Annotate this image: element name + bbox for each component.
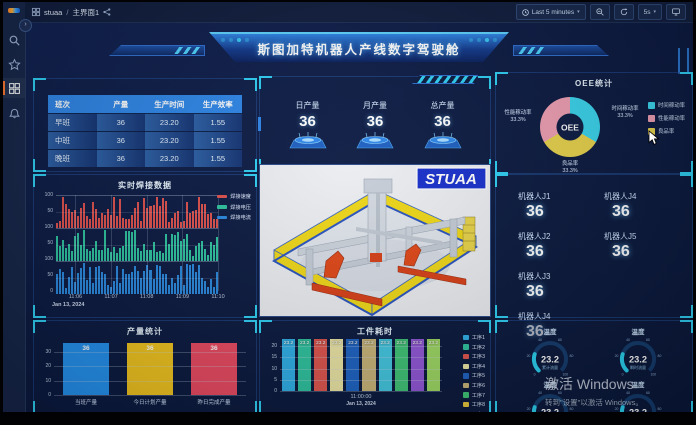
grid-line bbox=[182, 195, 183, 291]
bar-value-label: 23.2 bbox=[332, 341, 341, 346]
legend-swatch bbox=[463, 402, 469, 408]
workpiece-legend-item: 工序7 bbox=[463, 392, 485, 399]
panel-corner-decoration bbox=[33, 159, 46, 172]
welding-legend-item: 焊接速度 bbox=[217, 193, 251, 200]
legend-swatch bbox=[463, 383, 469, 389]
grid-line bbox=[54, 395, 246, 396]
search-icon[interactable] bbox=[3, 30, 25, 50]
robot-stat: 机器人J236 bbox=[518, 231, 596, 261]
gauges-grid: 温度02040608010023.2累计流量温度02040608010023.2… bbox=[506, 324, 682, 410]
stat-card-label: 月产量 bbox=[355, 100, 395, 111]
stat-card-value: 36 bbox=[423, 113, 463, 130]
svg-text:40: 40 bbox=[626, 338, 630, 342]
star-icon[interactable] bbox=[3, 54, 25, 74]
grid-line bbox=[54, 381, 246, 382]
oee-legend-item: 性能稼动率 bbox=[648, 114, 685, 122]
legend-swatch bbox=[463, 354, 469, 360]
legend-swatch bbox=[648, 115, 655, 122]
shift-table-panel: 班次产量生产时间生产效率早班3623.201.55中班3623.201.55晚班… bbox=[33, 78, 257, 172]
legend-label: 性能稼动率 bbox=[658, 114, 685, 122]
dashboards-icon[interactable] bbox=[3, 78, 25, 98]
svg-text:40: 40 bbox=[538, 338, 542, 342]
welding-title: 实时焊接数据 bbox=[34, 180, 256, 191]
welding-band bbox=[56, 195, 218, 228]
svg-text:23.2: 23.2 bbox=[629, 407, 647, 412]
shift-table: 班次产量生产时间生产效率早班3623.201.55中班3623.201.55晚班… bbox=[48, 95, 242, 167]
model-image-panel[interactable]: STUAA bbox=[259, 164, 491, 317]
stat-card-label: 总产量 bbox=[423, 100, 463, 111]
legend-swatch bbox=[648, 102, 655, 109]
y-axis-tick: 50 bbox=[47, 272, 53, 278]
welding-date: Jan 13, 2024 bbox=[52, 302, 84, 308]
table-header-cell: 产量 bbox=[97, 95, 146, 114]
legend-swatch bbox=[463, 344, 469, 350]
workpiece-date: Jan 13, 2024 bbox=[346, 401, 375, 407]
grid-line bbox=[147, 195, 148, 291]
panel-corner-decoration bbox=[244, 401, 257, 412]
grid-line bbox=[280, 357, 442, 358]
workpiece-title: 工件耗时 bbox=[260, 326, 490, 337]
x-axis-tick: 11:08 bbox=[140, 294, 153, 300]
x-axis-tick: 11:09 bbox=[176, 294, 189, 300]
grid-line bbox=[280, 391, 442, 392]
bar-category-label: 昨日完成产量 bbox=[191, 398, 237, 406]
oee-center-label: OEE bbox=[557, 114, 584, 141]
grid-line bbox=[75, 195, 76, 291]
stat-card: 总产量36 bbox=[423, 100, 463, 151]
gauge-arc: 02040608010023.2 bbox=[601, 388, 675, 412]
bar-category-label: 当班产量 bbox=[63, 398, 109, 406]
panel-corner-decoration bbox=[244, 159, 257, 172]
robot-stat: 机器人J136 bbox=[518, 191, 596, 221]
legend-swatch bbox=[463, 364, 469, 370]
legend-swatch bbox=[217, 195, 227, 199]
legend-swatch bbox=[463, 373, 469, 379]
panel-corner-decoration bbox=[495, 401, 508, 412]
alerts-bell-icon[interactable] bbox=[3, 102, 25, 122]
y-axis-tick: 50 bbox=[47, 240, 53, 246]
platform-icon bbox=[355, 131, 395, 151]
legend-label: 焊接电流 bbox=[230, 214, 251, 221]
legend-swatch bbox=[217, 216, 227, 220]
refresh-interval-label: 5s bbox=[644, 9, 651, 16]
y-axis-tick: 20 bbox=[271, 343, 277, 349]
svg-text:23.2: 23.2 bbox=[541, 354, 559, 364]
svg-text:瞬时流量: 瞬时流量 bbox=[630, 364, 646, 370]
temperature-gauge: 温度02040608010023.2累计流量 bbox=[506, 324, 594, 377]
legend-swatch bbox=[463, 392, 469, 398]
stat-card: 月产量36 bbox=[355, 100, 395, 151]
x-axis-tick: 11:07 bbox=[104, 294, 117, 300]
platform-icon bbox=[423, 131, 463, 151]
bar-category-label: 今日计划产量 bbox=[127, 398, 173, 406]
panel-corner-decoration bbox=[495, 320, 508, 333]
gauge-arc: 02040608010023.2累计流量 bbox=[513, 335, 587, 377]
oee-donut-chart: OEE bbox=[540, 97, 600, 157]
production-stats-title: 产量统计 bbox=[34, 326, 256, 337]
svg-text:80: 80 bbox=[570, 407, 574, 411]
welding-legend-item: 焊接电流 bbox=[217, 214, 251, 221]
y-axis-tick: 10 bbox=[45, 378, 51, 384]
y-axis-tick: 5 bbox=[274, 377, 277, 383]
workpiece-x-tick: 11:00:00 bbox=[350, 394, 371, 400]
y-axis-tick: 30 bbox=[45, 349, 51, 355]
legend-label: 工序6 bbox=[472, 382, 485, 389]
svg-text:累计流量: 累计流量 bbox=[542, 364, 558, 370]
dashboard-title: 斯图加特机器人产线数字驾驶舱 bbox=[257, 39, 460, 58]
panel-corner-decoration bbox=[680, 305, 693, 318]
workpiece-legend-item: 工序6 bbox=[463, 382, 485, 389]
robot-stat: 机器人J436 bbox=[604, 191, 682, 221]
robot-value: 36 bbox=[518, 283, 596, 301]
breadcrumb-app[interactable]: stuaa bbox=[44, 8, 62, 17]
clock-icon bbox=[522, 9, 529, 16]
oee-legend-item: 时间稼动率 bbox=[648, 101, 685, 109]
banner-wing-left bbox=[109, 45, 205, 56]
legend-label: 工序3 bbox=[472, 353, 485, 360]
bar-value-label: 23.2 bbox=[429, 341, 438, 346]
y-axis-tick: 100 bbox=[45, 224, 53, 230]
table-row: 中班3623.201.55 bbox=[48, 132, 242, 150]
panel-corner-decoration bbox=[478, 401, 491, 412]
y-axis-tick: 15 bbox=[271, 354, 277, 360]
sidebar bbox=[3, 2, 26, 412]
robot-stat: 机器人J536 bbox=[604, 231, 682, 261]
svg-text:40: 40 bbox=[538, 391, 542, 395]
stat-cards: 日产量36月产量36总产量36 bbox=[260, 77, 490, 171]
welding-band bbox=[56, 228, 218, 261]
gauge-arc: 02040608010023.2 bbox=[513, 388, 587, 412]
table-cell: 23.20 bbox=[145, 132, 194, 150]
stat-card-label: 日产量 bbox=[288, 100, 328, 111]
table-cell: 1.55 bbox=[194, 114, 243, 132]
workpiece-legend-item: 工序5 bbox=[463, 372, 485, 379]
robot-value: 36 bbox=[604, 203, 682, 221]
kiosk-mode-button[interactable] bbox=[666, 4, 686, 20]
bar-value-label: 23.2 bbox=[413, 341, 422, 346]
legend-label: 良品率 bbox=[658, 127, 674, 135]
table-cell: 1.55 bbox=[194, 132, 243, 150]
panel-corner-decoration bbox=[33, 78, 46, 91]
zoom-out-button[interactable] bbox=[590, 4, 610, 20]
bar-value-label: 23.2 bbox=[348, 341, 357, 346]
temperature-gauge: 温度02040608010023.2 bbox=[506, 377, 594, 412]
gauge-arc: 02040608010023.2瞬时流量 bbox=[601, 335, 675, 377]
svg-text:23.2: 23.2 bbox=[541, 407, 559, 412]
breadcrumb-page[interactable]: 主界面1 bbox=[72, 7, 99, 18]
breadcrumb-separator: / bbox=[66, 8, 68, 17]
oee-title: OEE统计 bbox=[496, 78, 692, 89]
production-cards-panel: 日产量36月产量36总产量36 bbox=[259, 76, 491, 172]
legend-swatch bbox=[217, 205, 227, 209]
workpiece-legend-item: 工序3 bbox=[463, 353, 485, 360]
table-row: 早班3623.201.55 bbox=[48, 114, 242, 132]
svg-text:20: 20 bbox=[615, 354, 619, 358]
panel-corner-decoration bbox=[33, 401, 46, 412]
svg-text:40: 40 bbox=[626, 391, 630, 395]
table-header-cell: 生产效率 bbox=[194, 95, 243, 114]
banner-dots-left bbox=[221, 38, 249, 42]
y-axis-tick: 20 bbox=[45, 363, 51, 369]
bar-value-label: 23.2 bbox=[380, 341, 389, 346]
temperature-gauge: 温度02040608010023.2 bbox=[594, 377, 682, 412]
refresh-icon bbox=[620, 8, 628, 16]
table-cell: 36 bbox=[97, 132, 146, 150]
legend-label: 工序2 bbox=[472, 344, 485, 351]
panel-corner-decoration bbox=[680, 320, 693, 333]
workpiece-legend-item: 工序4 bbox=[463, 363, 485, 370]
panel-corner-decoration bbox=[495, 305, 508, 318]
table-cell: 早班 bbox=[48, 114, 97, 132]
dashboard-grid-icon bbox=[32, 8, 40, 16]
temperature-gauge: 温度02040608010023.2瞬时流量 bbox=[594, 324, 682, 377]
table-cell: 晚班 bbox=[48, 150, 97, 168]
robot-value: 36 bbox=[604, 243, 682, 261]
svg-text:60: 60 bbox=[558, 391, 562, 395]
chevron-down-icon: ▾ bbox=[653, 9, 656, 15]
svg-text:80: 80 bbox=[570, 354, 574, 358]
robot-label: 机器人J5 bbox=[604, 231, 682, 242]
oee-panel: OEE统计 OEE 时间稼动率33.3% 性能稼动率33.3% 良品率33.3%… bbox=[495, 72, 693, 174]
x-axis-tick: 11:06 bbox=[69, 294, 82, 300]
robot-value: 36 bbox=[518, 243, 596, 261]
refresh-interval-picker[interactable]: 5s ▾ bbox=[638, 4, 662, 20]
welding-legend-item: 焊接电压 bbox=[217, 204, 251, 211]
panel-corner-decoration bbox=[680, 161, 693, 174]
welding-legend: 焊接速度焊接电压焊接电流 bbox=[217, 193, 251, 221]
platform-icon bbox=[288, 131, 328, 151]
svg-text:20: 20 bbox=[527, 354, 531, 358]
table-cell: 23.20 bbox=[145, 114, 194, 132]
svg-text:60: 60 bbox=[646, 391, 650, 395]
svg-text:80: 80 bbox=[658, 354, 662, 358]
y-axis-tick: 0 bbox=[50, 288, 53, 294]
legend-label: 工序4 bbox=[472, 363, 485, 370]
table-header-cell: 班次 bbox=[48, 95, 97, 114]
svg-text:60: 60 bbox=[646, 338, 650, 342]
app-logo[interactable] bbox=[8, 8, 20, 13]
monitor-icon bbox=[672, 8, 680, 16]
zoom-out-icon bbox=[596, 8, 604, 16]
stat-card: 日产量36 bbox=[288, 100, 328, 151]
welding-band bbox=[56, 261, 218, 294]
workpiece-chart-panel: 工件耗时 23.223.223.223.223.223.223.223.223.… bbox=[259, 320, 491, 412]
time-range-picker[interactable]: Last 5 minutes ▾ bbox=[516, 4, 586, 20]
panel-corner-decoration bbox=[680, 401, 693, 412]
grid-line bbox=[280, 369, 442, 370]
panel-corner-decoration bbox=[259, 401, 272, 412]
production-stats-plot: 36当班产量36今日计划产量36昨日完成产量 3020100 bbox=[54, 343, 246, 395]
bar-value-label: 23.2 bbox=[397, 341, 406, 346]
robot-value: 36 bbox=[518, 203, 596, 221]
banner-dots-right bbox=[469, 38, 497, 42]
time-range-label: Last 5 minutes bbox=[532, 9, 574, 16]
panel-corner-decoration bbox=[244, 78, 257, 91]
svg-text:20: 20 bbox=[615, 407, 619, 411]
table-header-cell: 生产时间 bbox=[145, 95, 194, 114]
share-icon[interactable] bbox=[103, 8, 111, 16]
svg-text:20: 20 bbox=[527, 407, 531, 411]
y-axis-tick: 100 bbox=[45, 192, 53, 198]
legend-label: 时间稼动率 bbox=[658, 101, 685, 109]
grid-line bbox=[280, 380, 442, 381]
table-cell: 23.20 bbox=[145, 150, 194, 168]
robot-label: 机器人J2 bbox=[518, 231, 596, 242]
title-banner: 斯图加特机器人产线数字驾驶舱 bbox=[109, 30, 609, 72]
svg-text:60: 60 bbox=[558, 338, 562, 342]
oee-slice-label: 性能稼动率33.3% bbox=[498, 110, 538, 125]
y-axis-tick: 10 bbox=[271, 366, 277, 372]
bar-value-label: 23.2 bbox=[284, 341, 293, 346]
grid-line bbox=[54, 352, 246, 353]
legend-label: 工序7 bbox=[472, 392, 485, 399]
panel-corner-decoration bbox=[478, 76, 491, 89]
chevron-down-icon: ▾ bbox=[577, 9, 580, 15]
y-axis-tick: 50 bbox=[47, 208, 53, 214]
legend-label: 工序5 bbox=[472, 372, 485, 379]
robot-label: 机器人J1 bbox=[518, 191, 596, 202]
grid-line bbox=[280, 346, 442, 347]
bar-value-label: 23.2 bbox=[364, 341, 373, 346]
table-cell: 1.55 bbox=[194, 150, 243, 168]
monitor-screen: › stuaa / 主界面1 Last 5 minutes ▾ 5s ▾ bbox=[3, 2, 693, 412]
y-axis-tick: 0 bbox=[48, 392, 51, 398]
banner-wing-right bbox=[513, 45, 609, 56]
panel-corner-decoration bbox=[495, 161, 508, 174]
bar-value-label: 23.2 bbox=[300, 341, 309, 346]
topbar-controls: Last 5 minutes ▾ 5s ▾ bbox=[516, 4, 686, 20]
edge-accent bbox=[678, 48, 689, 74]
grid-line bbox=[111, 195, 112, 291]
oee-slice-label: 时间稼动率33.3% bbox=[604, 106, 646, 121]
banner-plate: 斯图加特机器人产线数字驾驶舱 bbox=[209, 32, 509, 62]
legend-label: 焊接电压 bbox=[230, 204, 251, 211]
robot-label: 机器人J4 bbox=[604, 191, 682, 202]
table-cell: 36 bbox=[97, 150, 146, 168]
panel-corner-decoration bbox=[244, 305, 257, 318]
production-stats-panel: 产量统计 36当班产量36今日计划产量36昨日完成产量 3020100 bbox=[33, 320, 257, 412]
bar-value-label: 23.2 bbox=[316, 341, 325, 346]
stat-card-value: 36 bbox=[355, 113, 395, 130]
panel-corner-decoration bbox=[680, 174, 693, 187]
legend-label: 焊接速度 bbox=[230, 193, 251, 200]
svg-text:23.2: 23.2 bbox=[629, 354, 647, 364]
table-cell: 中班 bbox=[48, 132, 97, 150]
x-axis-tick: 11:10 bbox=[211, 294, 224, 300]
panel-corner-decoration bbox=[495, 174, 508, 187]
refresh-button[interactable] bbox=[614, 4, 634, 20]
robot-label: 机器人J3 bbox=[518, 271, 596, 282]
stat-card-value: 36 bbox=[288, 113, 328, 130]
y-axis-tick: 100 bbox=[45, 256, 53, 262]
panel-corner-decoration bbox=[33, 305, 46, 318]
mouse-cursor bbox=[648, 130, 660, 146]
svg-text:80: 80 bbox=[658, 407, 662, 411]
table-row: 晚班3623.201.55 bbox=[48, 150, 242, 168]
stuaa-logo: STUAA bbox=[425, 171, 477, 188]
panel-corner-decoration bbox=[259, 76, 272, 89]
topbar: stuaa / 主界面1 Last 5 minutes ▾ 5s ▾ bbox=[25, 2, 693, 23]
dashboard: 斯图加特机器人产线数字驾驶舱 班次产量生产时间生产效率早班3623.201.55… bbox=[25, 22, 693, 412]
welding-chart-panel: 实时焊接数据 Jan 13, 2024 11:0611:0711:0811:09… bbox=[33, 174, 257, 318]
sidebar-expand-chevron[interactable]: › bbox=[19, 19, 32, 32]
robot-stat: 机器人J336 bbox=[518, 271, 596, 301]
y-axis-tick: 0 bbox=[274, 388, 277, 394]
legend-swatch bbox=[463, 412, 469, 413]
production-line-3d-render: STUAA bbox=[260, 165, 490, 316]
temperature-gauges-panel: 温度02040608010023.2累计流量温度02040608010023.2… bbox=[495, 320, 693, 412]
welding-plot: Jan 13, 2024 11:0611:0711:0811:0911:1010… bbox=[56, 195, 218, 291]
robots-panel: 机器人J136机器人J236机器人J336机器人J436 机器人J436机器人J… bbox=[495, 174, 693, 318]
breadcrumb: stuaa / 主界面1 bbox=[32, 7, 111, 18]
workpiece-legend-item: 工序2 bbox=[463, 344, 485, 351]
grid-line bbox=[54, 366, 246, 367]
workpiece-plot: 23.223.223.223.223.223.223.223.223.223.2… bbox=[280, 339, 442, 391]
table-cell: 36 bbox=[97, 114, 146, 132]
